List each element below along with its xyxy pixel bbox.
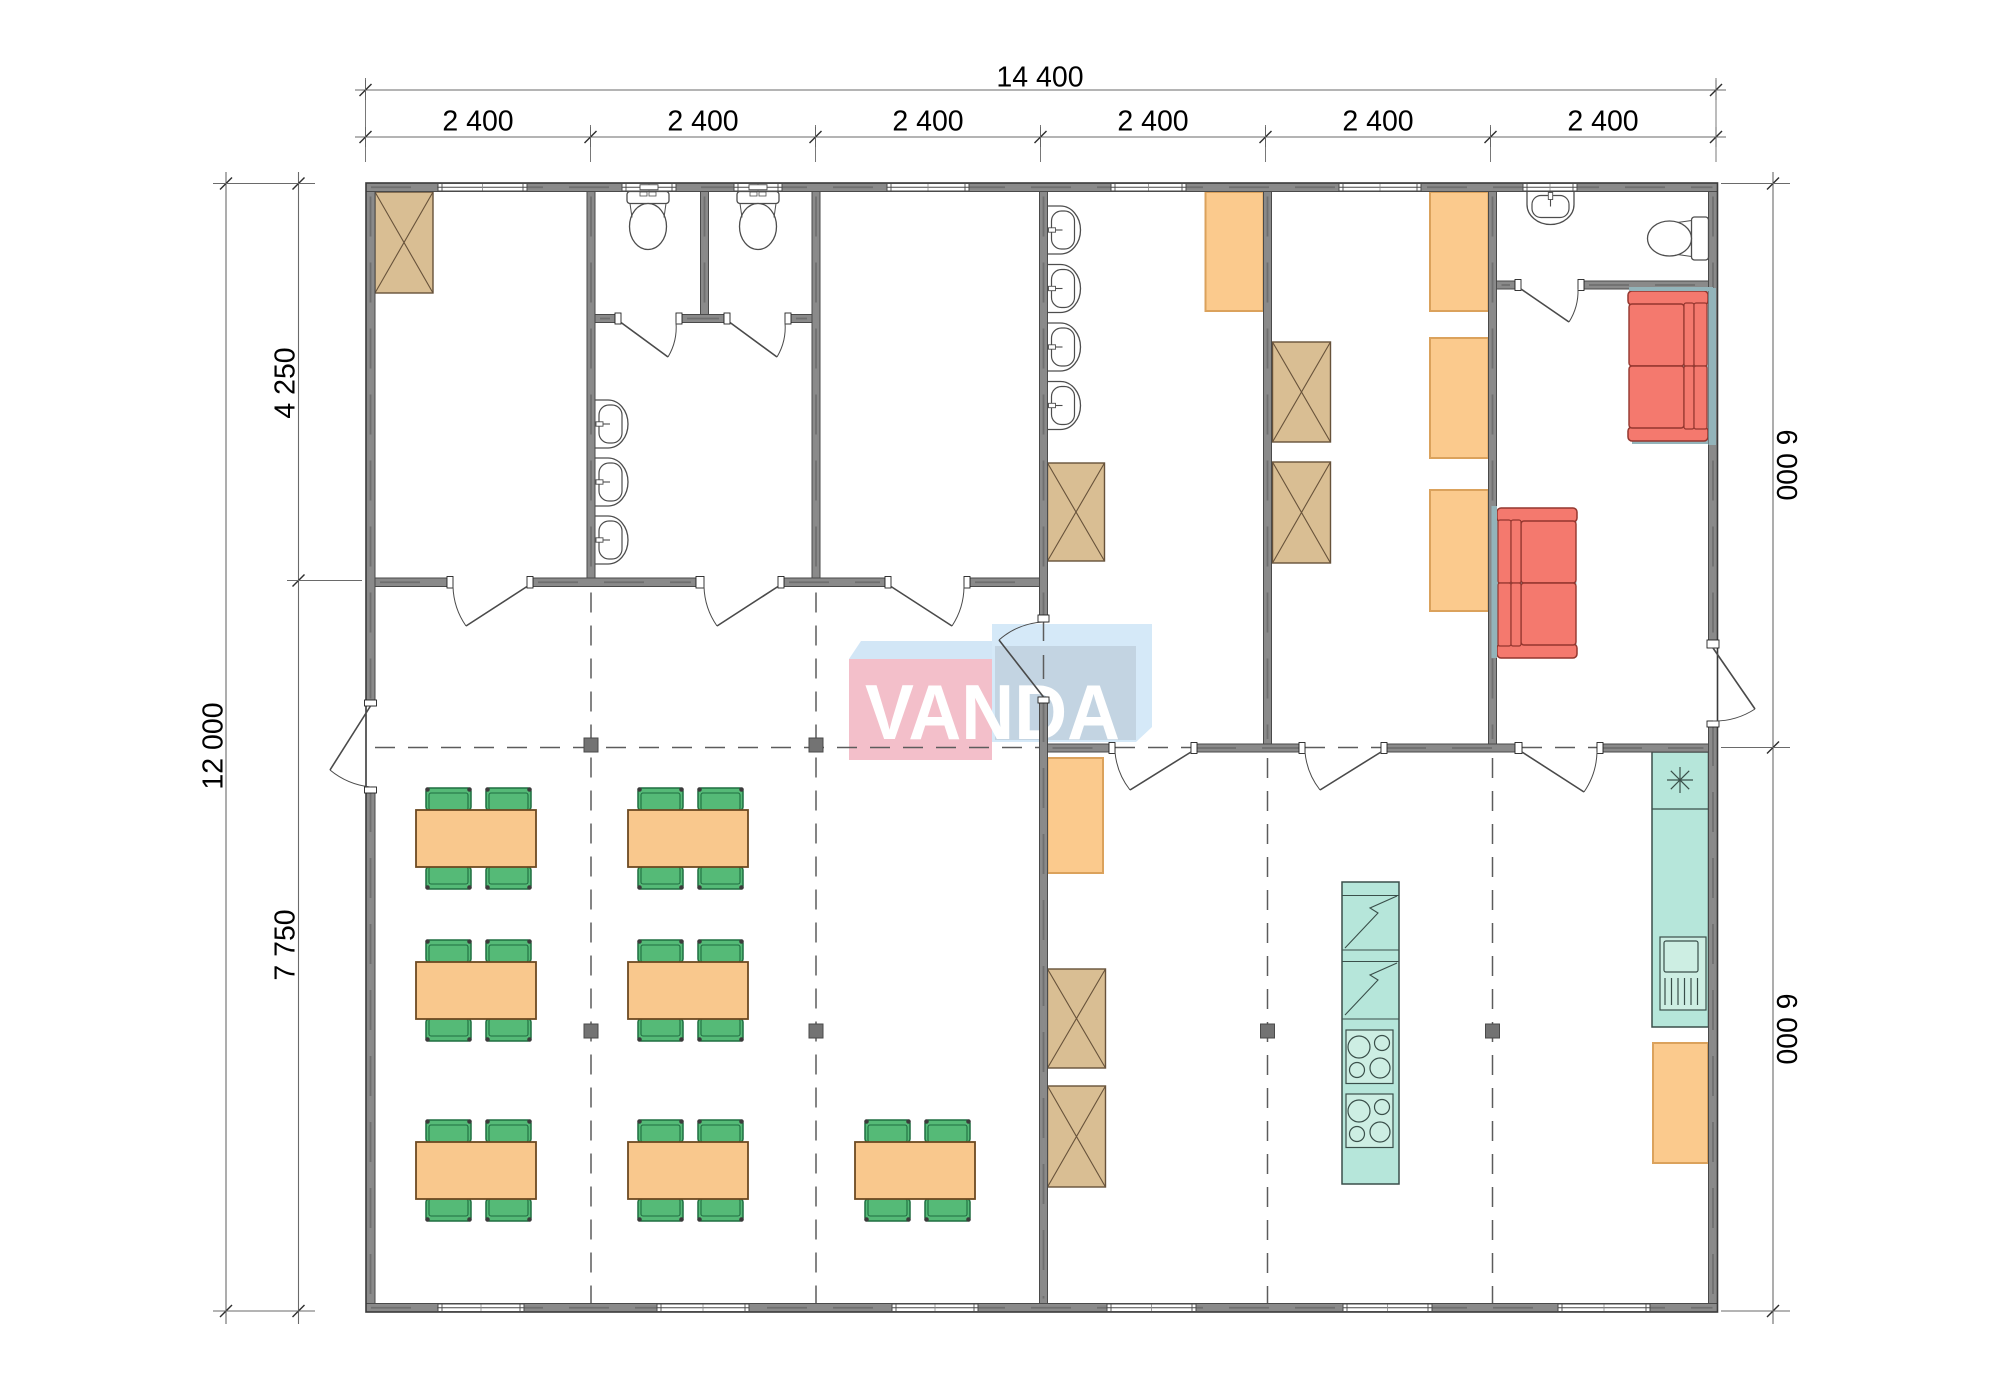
svg-text:2 400: 2 400 [1342, 106, 1413, 138]
svg-text:6 000: 6 000 [1770, 993, 1802, 1064]
svg-text:2 400: 2 400 [892, 106, 963, 138]
svg-text:4 250: 4 250 [270, 347, 302, 418]
svg-text:6 000: 6 000 [1770, 429, 1802, 500]
svg-text:12 000: 12 000 [198, 702, 230, 789]
svg-text:2 400: 2 400 [667, 106, 738, 138]
svg-text:14 400: 14 400 [996, 62, 1083, 94]
svg-text:2 400: 2 400 [442, 106, 513, 138]
svg-text:2 400: 2 400 [1117, 106, 1188, 138]
svg-text:VANDA: VANDA [865, 668, 1120, 756]
svg-text:2 400: 2 400 [1567, 106, 1638, 138]
svg-text:7 750: 7 750 [270, 909, 302, 980]
